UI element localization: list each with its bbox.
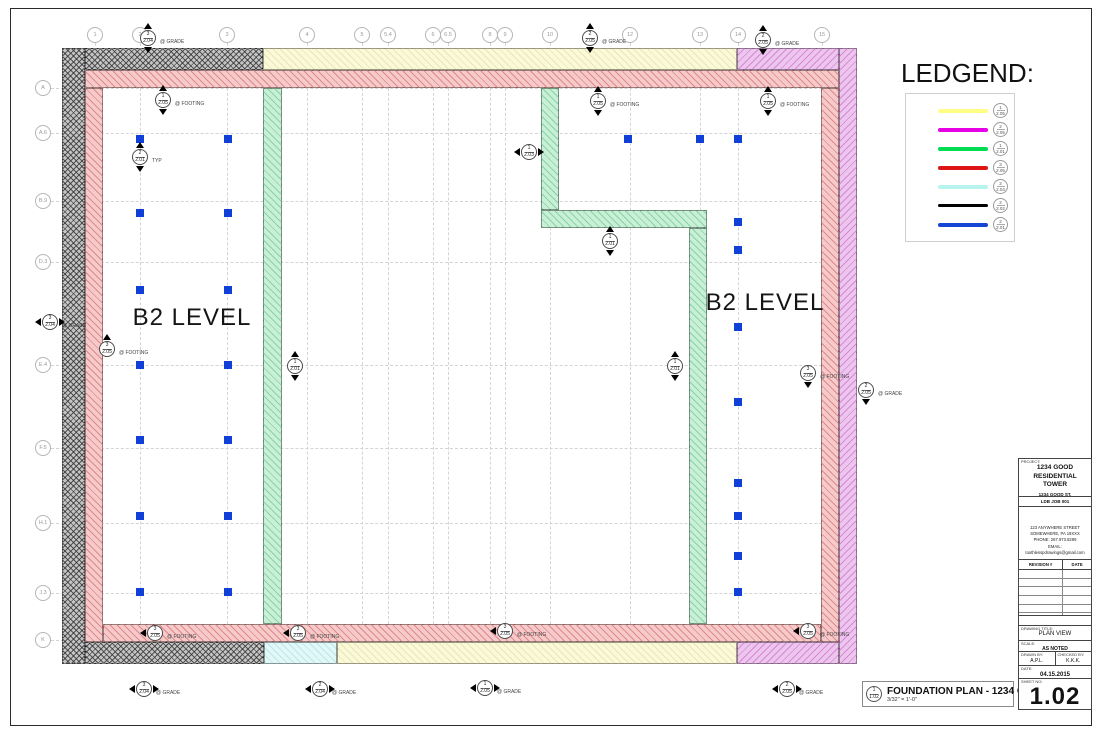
grid-row-bubble: B.9 (35, 193, 51, 209)
grid-column-bubble: 5 (354, 27, 370, 43)
firm-section: 123 ANYWHERE STREET SOMEWHERE, PA 19XXX … (1019, 507, 1091, 561)
legend-swatch-red-wall (938, 166, 988, 170)
grid-column-bubble: 5.4 (380, 27, 396, 43)
wall-top-magenta (737, 48, 839, 70)
date-value: 04.15.2015 (1021, 672, 1089, 678)
legend-detail-bubble: 22.02 (993, 198, 1008, 213)
column-footing-marker (224, 286, 232, 294)
green-wall-west (263, 88, 282, 624)
grid-row-bubble: A.6 (35, 125, 51, 141)
legend-item-red-wall: 32.05 (912, 158, 1008, 177)
revision-number-cell (1019, 570, 1063, 578)
marker-sheet-number: 2.04 (44, 323, 56, 329)
marker-bubble: 22.01 (132, 149, 148, 165)
section-marker: 12.01 (602, 233, 618, 249)
legend-sheet-number: 2.01 (996, 149, 1005, 154)
scale-section: SCALE: AS NOTED (1019, 641, 1091, 653)
marker-bubble: 22.04 (312, 681, 328, 697)
project-name-line1: 1234 GOOD (1021, 464, 1089, 472)
marker-label: @ GRADE (878, 391, 902, 397)
section-marker: 22.01TYP (132, 149, 148, 165)
legend-item-green-wall: 12.01 (912, 139, 1008, 158)
marker-arrow-icon (538, 148, 544, 156)
title-block: PROJECT: 1234 GOOD RESIDENTIAL TOWER 123… (1018, 458, 1092, 710)
date-section: DATE: 04.15.2015 (1019, 666, 1091, 679)
checked-by-value: K.K.K. (1058, 658, 1090, 664)
marker-arrow-icon (283, 629, 289, 637)
legend-item-yellow-wall: 12.05 (912, 101, 1008, 120)
marker-bubble: 32.04 (42, 314, 58, 330)
marker-arrow-icon (671, 375, 679, 381)
marker-bubble: 32.05 (800, 365, 816, 381)
drawing-title-section: DRAWING TITLE: PLAN VIEW (1019, 626, 1091, 641)
marker-arrow-icon (514, 148, 520, 156)
section-marker: 32.04@ GRADE (140, 30, 156, 46)
detail-reference-bubble: 1 1.02 (866, 686, 882, 702)
column-footing-marker (624, 135, 632, 143)
marker-label: @ FOOTING (310, 634, 339, 640)
column-footing-marker (734, 218, 742, 226)
wall-bottom-yellow (337, 642, 737, 664)
revision-number-cell (1019, 596, 1063, 604)
level-label-right: B2 LEVEL (706, 289, 825, 317)
grid-row-line (51, 365, 857, 366)
drawn-by-value: A.P.L. (1021, 658, 1053, 664)
grid-row-line (51, 133, 857, 134)
column-footing-marker (734, 398, 742, 406)
grid-column-line (388, 43, 389, 664)
marker-label: @ FOOTING (175, 101, 204, 107)
marker-arrow-icon (136, 142, 144, 148)
grid-column-bubble: 8 (482, 27, 498, 43)
marker-arrow-icon (470, 684, 476, 692)
detail-sheet: 1.02 (869, 695, 879, 701)
marker-bubble: 22.05 (779, 681, 795, 697)
foundation-wall-left (85, 88, 103, 642)
marker-sheet-number: 2.05 (584, 39, 596, 45)
grid-column-bubble: 15 (814, 27, 830, 43)
revision-row (1019, 605, 1091, 614)
column-footing-marker (734, 323, 742, 331)
column-footing-marker (734, 552, 742, 560)
section-marker: 32.05@ FOOTING (800, 623, 816, 639)
marker-sheet-number: 2.04 (314, 690, 326, 696)
marker-sheet-number: 2.05 (157, 101, 169, 107)
marker-sheet-number: 2.05 (592, 102, 604, 108)
marker-arrow-icon (144, 47, 152, 53)
marker-sheet-number: 2.01 (134, 158, 146, 164)
marker-arrow-icon (305, 685, 311, 693)
wall-top-yellow (263, 48, 737, 70)
marker-label: @ FOOTING (610, 102, 639, 108)
marker-arrow-icon (764, 110, 772, 116)
marker-arrow-icon (764, 86, 772, 92)
blank-section (1019, 616, 1091, 626)
grid-row-bubble: H.1 (35, 515, 51, 531)
marker-label: @ GRADE (799, 690, 823, 696)
drawing-title-bar: 1 1.02 FOUNDATION PLAN - 1234 GOOD 3/32"… (862, 681, 1014, 707)
legend-swatch-green-wall (938, 147, 988, 151)
marker-sheet-number: 2.04 (142, 39, 154, 45)
marker-arrow-icon (291, 351, 299, 357)
marker-arrow-icon (586, 23, 594, 29)
section-marker: 22.05@ GRADE (582, 30, 598, 46)
revision-number-cell (1019, 587, 1063, 595)
section-marker: 12.01 (287, 358, 303, 374)
grid-column-bubble: 6 (425, 27, 441, 43)
grid-column-bubble: 9 (497, 27, 513, 43)
legend-sheet-number: 2.02 (996, 206, 1005, 211)
wall-bottom-gray (85, 642, 264, 664)
revision-date-header: DATE (1063, 562, 1091, 567)
wall-right-magenta (839, 48, 857, 664)
grid-row-bubble: E.4 (35, 357, 51, 373)
marker-bubble: 12.05 (760, 93, 776, 109)
marker-arrow-icon (759, 49, 767, 55)
revision-row (1019, 596, 1091, 605)
section-marker: 12.01 (667, 358, 683, 374)
revision-row (1019, 587, 1091, 596)
marker-sheet-number: 2.01 (289, 367, 301, 373)
marker-arrow-icon (594, 86, 602, 92)
legend-detail-bubble: 12.01 (993, 141, 1008, 156)
marker-sheet-number: 2.05 (479, 689, 491, 695)
marker-bubble: 12.01 (667, 358, 683, 374)
wall-top-gray (85, 48, 263, 70)
column-footing-marker (734, 512, 742, 520)
marker-arrow-icon (772, 685, 778, 693)
marker-arrow-icon (129, 685, 135, 693)
marker-arrow-icon (606, 226, 614, 232)
marker-label: @ FOOTING (517, 632, 546, 638)
grid-row-bubble: D.3 (35, 254, 51, 270)
marker-arrow-icon (35, 318, 41, 326)
marker-arrow-icon (140, 629, 146, 637)
column-footing-marker (136, 588, 144, 596)
section-marker: 22.05@ GRADE (755, 32, 771, 48)
column-footing-marker (734, 588, 742, 596)
grid-row-line (51, 262, 857, 263)
legend-detail-bubble: 32.05 (993, 160, 1008, 175)
marker-sheet-number: 2.01 (669, 367, 681, 373)
legend-item-black-wall: 22.02 (912, 196, 1008, 215)
level-label-left: B2 LEVEL (133, 304, 252, 332)
marker-label: @ GRADE (497, 689, 521, 695)
grid-column-bubble: 6.5 (440, 27, 456, 43)
marker-label: @ FOOTING (780, 102, 809, 108)
legend-sheet-number: 2.01 (996, 225, 1005, 230)
marker-arrow-icon (159, 85, 167, 91)
marker-sheet-number: 2.05 (149, 634, 161, 640)
marker-arrow-icon (144, 23, 152, 29)
section-marker: 12.03 (521, 144, 537, 160)
drawn-checked-section: DRAWN BY: A.P.L. CHECKED BY: K.K.K. (1019, 652, 1091, 666)
wall-bottom-magenta (737, 642, 839, 664)
marker-sheet-number: 2.04 (138, 690, 150, 696)
green-wall-east-lower (689, 228, 707, 624)
section-marker: 12.05@ FOOTING (760, 93, 776, 109)
foundation-wall-right (821, 88, 839, 642)
column-footing-marker (734, 246, 742, 254)
revision-table: REVISION # DATE (1019, 560, 1091, 616)
marker-sheet-number: 2.05 (757, 41, 769, 47)
wall-bottom-cyan (264, 642, 337, 664)
marker-arrow-icon (606, 250, 614, 256)
marker-bubble: 32.05 (800, 623, 816, 639)
marker-arrow-icon (586, 47, 594, 53)
grid-column-bubble: 1 (87, 27, 103, 43)
project-section: PROJECT: 1234 GOOD RESIDENTIAL TOWER 123… (1019, 459, 1091, 497)
marker-bubble: 32.04 (140, 30, 156, 46)
marker-sheet-number: 2.05 (292, 634, 304, 640)
scale-value: AS NOTED (1021, 646, 1089, 652)
grid-column-bubble: 13 (692, 27, 708, 43)
grid-row-bubble: K (35, 632, 51, 648)
drawing-sheet: 123455.466.5891012131415AA.6B.9D.3E.4F.5… (0, 0, 1100, 733)
grid-column-line (362, 43, 363, 664)
marker-bubble: 12.01 (602, 233, 618, 249)
grid-column-bubble: 10 (542, 27, 558, 43)
marker-bubble: 32.05 (147, 625, 163, 641)
marker-arrow-icon (793, 627, 799, 635)
marker-sheet-number: 2.05 (101, 350, 113, 356)
marker-sheet-number: 2.01 (604, 242, 616, 248)
column-footing-marker (224, 512, 232, 520)
grid-row-bubble: A (35, 80, 51, 96)
legend-swatch-magenta-wall (938, 128, 988, 132)
grid-row-line (51, 448, 857, 449)
marker-bubble: 32.04 (136, 681, 152, 697)
marker-bubble: 22.05 (858, 382, 874, 398)
column-footing-marker (224, 361, 232, 369)
marker-arrow-icon (671, 351, 679, 357)
grid-row-line (51, 523, 857, 524)
legend-swatch-blue-footing (938, 223, 988, 227)
legend-detail-bubble: 22.05 (993, 122, 1008, 137)
section-marker: 32.05@ FOOTING (147, 625, 163, 641)
section-marker: 32.04@ GRADE (42, 314, 58, 330)
legend-item-magenta-wall: 22.05 (912, 120, 1008, 139)
grid-column-line (307, 43, 308, 664)
section-marker: 32.05@ FOOTING (99, 341, 115, 357)
legend-detail-bubble: 22.04 (993, 179, 1008, 194)
revision-table-header: REVISION # DATE (1019, 560, 1091, 570)
marker-arrow-icon (594, 110, 602, 116)
legend-box: 12.0522.0512.0132.0522.0422.0222.01 (905, 93, 1015, 242)
column-footing-marker (734, 479, 742, 487)
grid-row-bubble: F.5 (35, 440, 51, 456)
legend-detail-bubble: 12.05 (993, 103, 1008, 118)
firm-email: EMAIL: toothlesspdrawings@gmail.com (1021, 544, 1089, 557)
marker-sheet-number: 2.05 (781, 690, 793, 696)
job-number: LDB JOB 001 (1019, 497, 1091, 507)
foundation-wall-bottom (103, 624, 821, 642)
column-footing-marker (224, 436, 232, 444)
column-footing-marker (136, 209, 144, 217)
grid-column-bubble: 3 (219, 27, 235, 43)
marker-bubble: 32.05 (290, 625, 306, 641)
marker-arrow-icon (490, 627, 496, 635)
sheet-number-section: SHEET NO: 1.02 (1019, 679, 1091, 709)
marker-sheet-number: 2.05 (802, 632, 814, 638)
column-footing-marker (224, 588, 232, 596)
section-marker: 32.05@ FOOTING (800, 365, 816, 381)
wall-left-gray (62, 48, 85, 664)
legend-sheet-number: 2.05 (996, 168, 1005, 173)
marker-arrow-icon (103, 334, 111, 340)
grid-row-line (51, 88, 857, 89)
section-marker: 12.05@ FOOTING (590, 93, 606, 109)
legend-item-cyan-wall: 22.04 (912, 177, 1008, 196)
marker-label: @ GRADE (775, 41, 799, 47)
marker-sheet-number: 2.05 (802, 374, 814, 380)
column-footing-marker (136, 286, 144, 294)
revision-number-cell (1019, 605, 1063, 613)
grid-column-line (448, 43, 449, 664)
drawing-scale: 3/32" = 1'-0" (887, 697, 917, 703)
marker-sheet-number: 2.03 (523, 153, 535, 159)
section-marker: 12.05@ FOOTING (155, 92, 171, 108)
section-marker: 12.05@ GRADE (477, 680, 493, 696)
column-footing-marker (136, 512, 144, 520)
marker-arrow-icon (291, 375, 299, 381)
marker-bubble: 32.05 (99, 341, 115, 357)
marker-bubble: 22.05 (755, 32, 771, 48)
marker-bubble: 12.03 (521, 144, 537, 160)
marker-label: @ FOOTING (167, 634, 196, 640)
project-name-line2: RESIDENTIAL TOWER (1021, 473, 1089, 489)
marker-arrow-icon (159, 109, 167, 115)
marker-label: @ GRADE (332, 690, 356, 696)
marker-label: @ GRADE (156, 690, 180, 696)
marker-label: @ FOOTING (119, 350, 148, 356)
legend-title: LEDGEND: (901, 58, 1013, 89)
drawing-title-value: PLAN VIEW (1021, 631, 1089, 637)
revision-row (1019, 570, 1091, 579)
marker-bubble: 32.05 (497, 623, 513, 639)
marker-arrow-icon (804, 382, 812, 388)
section-marker: 32.05@ FOOTING (290, 625, 306, 641)
column-footing-marker (136, 436, 144, 444)
marker-sheet-number: 2.05 (860, 391, 872, 397)
grid-column-line (490, 43, 491, 664)
revision-col-header: REVISION # (1019, 560, 1063, 569)
column-footing-marker (224, 209, 232, 217)
revision-number-cell (1019, 579, 1063, 587)
grid-column-line (433, 43, 434, 664)
foundation-wall-top (85, 70, 839, 88)
marker-label: @ FOOTING (820, 632, 849, 638)
section-marker: 32.04@ GRADE (136, 681, 152, 697)
column-footing-marker (224, 135, 232, 143)
marker-label: @ GRADE (160, 39, 184, 45)
marker-bubble: 12.05 (590, 93, 606, 109)
grid-column-bubble: 14 (730, 27, 746, 43)
green-wall-east-jog (541, 210, 707, 228)
marker-label: @ FOOTING (820, 374, 849, 380)
legend-swatch-cyan-wall (938, 185, 988, 189)
legend-sheet-number: 2.05 (996, 130, 1005, 135)
legend-swatch-yellow-wall (938, 109, 988, 113)
legend-sheet-number: 2.05 (996, 111, 1005, 116)
marker-label: @ GRADE (602, 39, 626, 45)
marker-label: TYP (152, 158, 162, 164)
marker-arrow-icon (759, 25, 767, 31)
grid-column-line (505, 43, 506, 664)
marker-arrow-icon (862, 399, 870, 405)
section-marker: 22.04@ GRADE (312, 681, 328, 697)
marker-sheet-number: 2.05 (762, 102, 774, 108)
column-footing-marker (734, 135, 742, 143)
grid-column-bubble: 4 (299, 27, 315, 43)
section-marker: 32.05@ FOOTING (497, 623, 513, 639)
marker-bubble: 12.01 (287, 358, 303, 374)
marker-label: @ GRADE (62, 323, 86, 329)
marker-bubble: 12.05 (477, 680, 493, 696)
legend-item-blue-footing: 22.01 (912, 215, 1008, 234)
column-footing-marker (696, 135, 704, 143)
marker-bubble: 12.05 (155, 92, 171, 108)
legend: LEDGEND: 12.0522.0512.0132.0522.0422.022… (901, 58, 1013, 242)
legend-sheet-number: 2.04 (996, 187, 1005, 192)
marker-bubble: 22.05 (582, 30, 598, 46)
legend-swatch-black-wall (938, 204, 988, 207)
grid-row-bubble: J.3 (35, 585, 51, 601)
grid-row-line (51, 201, 857, 202)
legend-detail-bubble: 22.01 (993, 217, 1008, 232)
marker-arrow-icon (136, 166, 144, 172)
section-marker: 22.05@ GRADE (858, 382, 874, 398)
marker-sheet-number: 2.05 (499, 632, 511, 638)
sheet-number: 1.02 (1021, 685, 1089, 709)
revision-row (1019, 579, 1091, 588)
column-footing-marker (136, 361, 144, 369)
section-marker: 22.05@ GRADE (779, 681, 795, 697)
